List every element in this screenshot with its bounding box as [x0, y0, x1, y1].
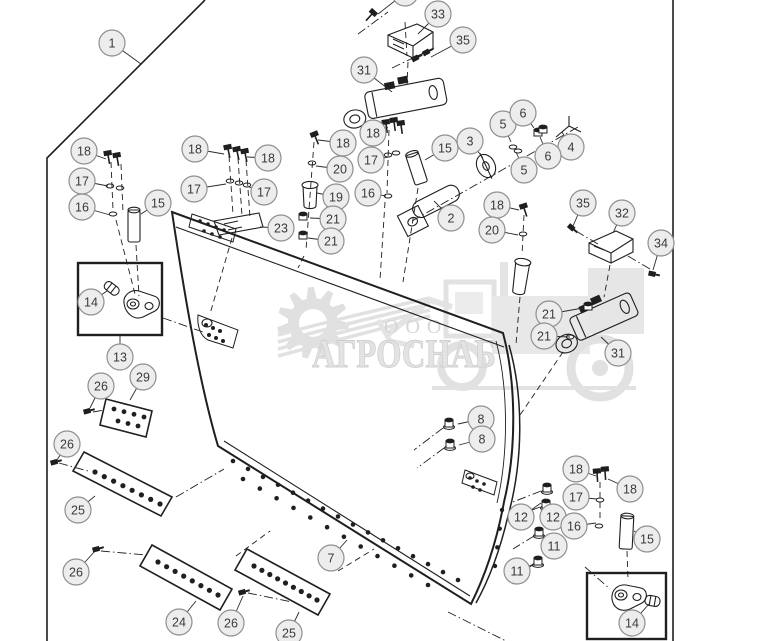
callout-number: 20	[485, 224, 499, 238]
callout-4: 4	[558, 134, 584, 160]
pin-15-bottom-right	[619, 513, 634, 549]
callout-15: 15	[634, 526, 660, 552]
callout-18: 18	[182, 136, 208, 162]
bolt-icon	[224, 144, 234, 158]
callout-34: 34	[648, 230, 674, 256]
callout-number: 12	[514, 511, 528, 525]
callout-number: 35	[576, 197, 590, 211]
callout-number: 17	[364, 154, 378, 168]
screw-icon	[423, 47, 435, 56]
callout-number: 17	[257, 186, 271, 200]
callout-29: 29	[130, 364, 156, 390]
cutting-edge-25-lower	[235, 549, 330, 615]
callout-number: 8	[478, 413, 485, 427]
washer-icon	[595, 524, 603, 528]
callout-number: 33	[431, 8, 445, 22]
callout-number: 15	[438, 142, 452, 156]
callout-32: 32	[609, 200, 635, 226]
callout-17: 17	[251, 179, 277, 205]
washer-icon	[226, 179, 234, 183]
nut-icon	[539, 125, 547, 133]
callout-number: 26	[224, 617, 238, 631]
callout-number: 31	[611, 347, 625, 361]
bolt-icon	[519, 203, 530, 218]
callout-7: 7	[318, 545, 344, 571]
bolt-icon	[241, 148, 251, 162]
callout-number: 18	[490, 199, 504, 213]
callout-number: 26	[60, 438, 74, 452]
callout-18: 18	[617, 476, 643, 502]
washer-icon	[596, 498, 604, 502]
callout-24: 24	[166, 609, 192, 635]
callout-number: 29	[136, 371, 150, 385]
callout-number: 18	[261, 152, 275, 166]
callout-18: 18	[71, 138, 97, 164]
callout-26: 26	[218, 610, 244, 636]
callout-number: 18	[623, 483, 637, 497]
callout-number: 17	[75, 175, 89, 189]
callout-number: 11	[511, 565, 524, 579]
clamp-detail-bottom	[612, 585, 661, 610]
callout-2: 2	[438, 205, 464, 231]
callout-11: 11	[541, 533, 567, 559]
bolt-icon	[397, 121, 406, 135]
callout-14: 14	[619, 610, 645, 636]
callout-number: 25	[71, 504, 85, 518]
callout-number: 32	[615, 207, 629, 221]
callout-15: 15	[432, 135, 458, 161]
callout-number: 31	[357, 64, 371, 78]
callout-17: 17	[181, 176, 207, 202]
callout-number: 20	[333, 163, 347, 177]
cutting-edge-24	[140, 545, 232, 610]
callout-number: 4	[568, 141, 575, 155]
pin-15-left	[128, 207, 140, 242]
callout-number: 12	[546, 511, 560, 525]
callout-17: 17	[563, 484, 589, 510]
watermark: ООО АГРОСНАБ	[277, 262, 644, 397]
washer-icon	[116, 186, 124, 190]
callout-number: 26	[69, 566, 83, 580]
callout-25: 25	[65, 497, 91, 523]
callout-number: 5	[521, 164, 528, 178]
callout-cut	[392, 0, 418, 6]
callout-20: 20	[479, 217, 505, 243]
callout-number: 18	[569, 463, 583, 477]
screw-icon	[51, 458, 63, 465]
bolt-icon	[104, 150, 113, 164]
callout-26: 26	[63, 559, 89, 585]
cap-nut-icon	[534, 527, 545, 538]
callout-21: 21	[531, 323, 557, 349]
pin-15-mid	[405, 149, 428, 185]
disc-3	[472, 150, 500, 183]
callout-number: 21	[537, 330, 551, 344]
callout-16: 16	[561, 513, 587, 539]
cap-nut-icon	[533, 556, 544, 567]
screw-icon	[239, 588, 251, 595]
bolt-holes	[92, 219, 504, 602]
callout-6: 6	[510, 100, 536, 126]
callout-1: 1	[99, 30, 125, 56]
nut-icon	[584, 302, 592, 310]
callout-number: 21	[542, 308, 556, 322]
callout-number: 18	[77, 145, 91, 159]
callout-18: 18	[484, 192, 510, 218]
bolt-icon	[601, 467, 609, 480]
callout-number: 16	[361, 187, 375, 201]
callout-number: 19	[329, 191, 343, 205]
washer-icon	[509, 145, 517, 149]
exploded-parts-diagram: ООО АГРОСНАБ	[0, 0, 781, 641]
callout-number: 15	[640, 533, 654, 547]
callout-11: 11	[504, 558, 530, 584]
pivot-pin-right	[510, 257, 531, 295]
callout-15: 15	[145, 190, 171, 216]
washer-icon	[109, 212, 117, 216]
callout-number: 2	[448, 212, 455, 226]
callout-26: 26	[54, 431, 80, 457]
screw-icon	[649, 271, 661, 277]
callout-number: 15	[151, 197, 165, 211]
callout-number: 6	[520, 107, 527, 121]
callout-number: 16	[75, 201, 89, 215]
callout-33: 33	[425, 1, 451, 27]
callout-number: 17	[187, 183, 201, 197]
callout-number: 3	[467, 135, 474, 149]
callout-number: 17	[569, 491, 583, 505]
nut-icon	[299, 231, 307, 239]
callout-17: 17	[69, 168, 95, 194]
callout-3: 3	[457, 128, 483, 154]
callout-number: 6	[545, 150, 552, 164]
callout-17: 17	[358, 147, 384, 173]
cap-nut-icon	[445, 439, 456, 450]
callout-number: 1	[109, 37, 116, 51]
callout-number: 7	[328, 552, 335, 566]
callout-18: 18	[330, 130, 356, 156]
callout-25: 25	[276, 620, 302, 641]
watermark-company-name: АГРОСНАБ	[312, 331, 496, 376]
callout-number: 14	[625, 617, 639, 631]
callout-6: 6	[535, 143, 561, 169]
callout-12: 12	[508, 504, 534, 530]
callout-18: 18	[563, 456, 589, 482]
callout-35: 35	[450, 27, 476, 53]
bolt-icon	[310, 131, 321, 146]
callout-14: 14	[78, 289, 104, 315]
callout-16: 16	[355, 180, 381, 206]
washer-icon	[392, 151, 400, 155]
cap-nut-icon	[444, 418, 455, 429]
callout-number: 13	[113, 351, 127, 365]
callout-number: 25	[282, 627, 296, 641]
washer-icon	[235, 181, 243, 185]
callout-16: 16	[69, 194, 95, 220]
callout-13: 13	[107, 344, 133, 370]
callout-number: 24	[172, 616, 186, 630]
blade-moldboard-7	[172, 212, 520, 604]
callout-35: 35	[570, 190, 596, 216]
callout-number: 35	[456, 34, 470, 48]
bracket-32	[589, 231, 633, 263]
callout-number: 21	[326, 213, 340, 227]
clamp-detail-13	[103, 280, 160, 318]
callout-18: 18	[360, 120, 386, 146]
spring-pin-14	[103, 280, 121, 297]
bolt-icon	[233, 146, 243, 160]
callout-31: 31	[351, 57, 377, 83]
callout-number: 18	[336, 137, 350, 151]
callout-number: 23	[274, 222, 288, 236]
callout-number: 5	[500, 118, 507, 132]
callout-number: 21	[324, 235, 338, 249]
callout-20: 20	[327, 156, 353, 182]
cap-nut-icon	[542, 483, 553, 494]
watermark-logo-icon	[277, 262, 644, 397]
parts-diagram-page: ООО АГРОСНАБ	[0, 0, 781, 641]
washer-icon	[243, 183, 251, 187]
callout-18: 18	[255, 145, 281, 171]
callout-number: 34	[654, 237, 668, 251]
nut-icon	[299, 212, 307, 220]
callout-number: 26	[94, 380, 108, 394]
callout-21: 21	[318, 228, 344, 254]
callout-5: 5	[511, 157, 537, 183]
callout-26: 26	[88, 373, 114, 399]
callout-number: 11	[548, 540, 561, 554]
callout-31: 31	[605, 340, 631, 366]
callout-number: 18	[188, 143, 202, 157]
callout-number: 16	[567, 520, 581, 534]
callout-8: 8	[469, 426, 495, 452]
callout-number: 8	[479, 433, 486, 447]
washer-icon	[514, 149, 522, 153]
callout-23: 23	[268, 215, 294, 241]
callout-number: 14	[84, 296, 98, 310]
callout-number: 18	[366, 127, 380, 141]
bolt-14-bottom	[644, 595, 661, 607]
screw-icon	[84, 407, 96, 414]
